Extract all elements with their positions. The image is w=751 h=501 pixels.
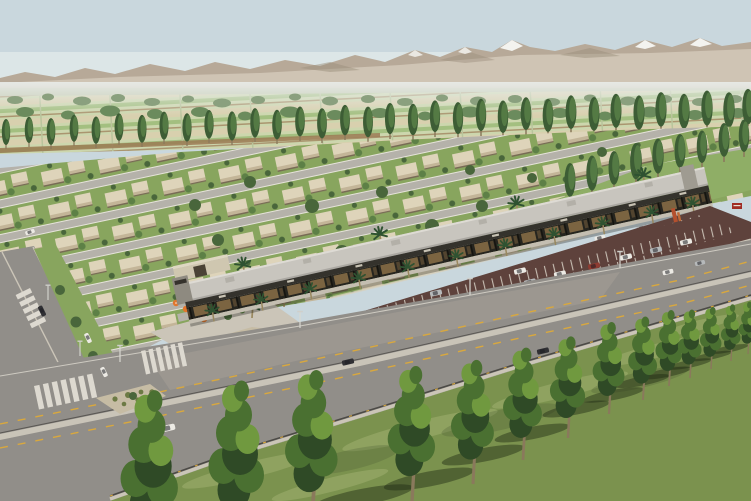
rendering-scene [0, 0, 751, 501]
entry-sign [732, 203, 742, 209]
aerial-rendering [0, 0, 751, 501]
